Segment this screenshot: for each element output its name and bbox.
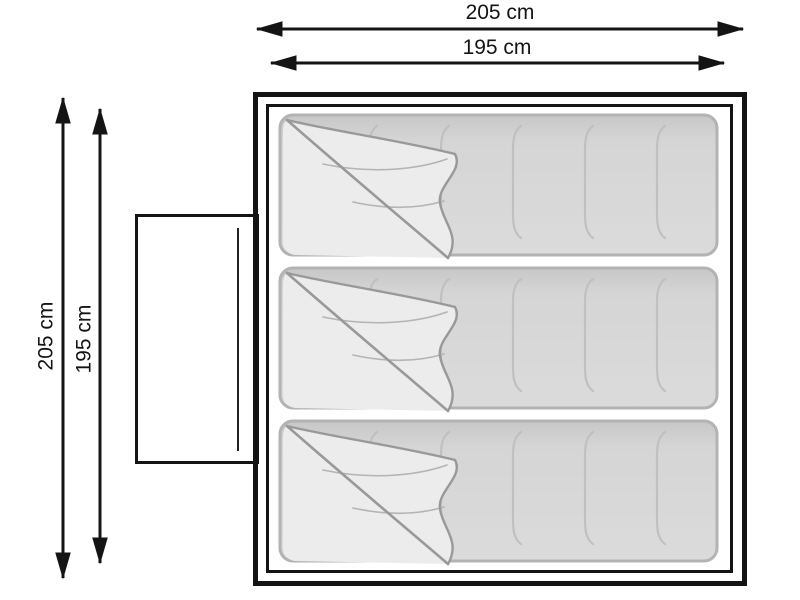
sleeping-bag-3	[278, 419, 719, 569]
dimension-label-height-inner: 195 cm	[74, 305, 95, 374]
dimension-label-height-outer: 205 cm	[36, 302, 57, 371]
door-panel	[135, 214, 259, 464]
dimension-label-width-outer: 205 cm	[466, 2, 535, 23]
sleeping-bag-1	[278, 113, 719, 263]
door-zipper-line	[237, 228, 239, 451]
sleeping-bag-2	[278, 266, 719, 416]
tent-floorplan-diagram: 205 cm 195 cm 205 cm 195 cm	[0, 0, 800, 600]
dimension-label-width-inner: 195 cm	[463, 37, 532, 58]
